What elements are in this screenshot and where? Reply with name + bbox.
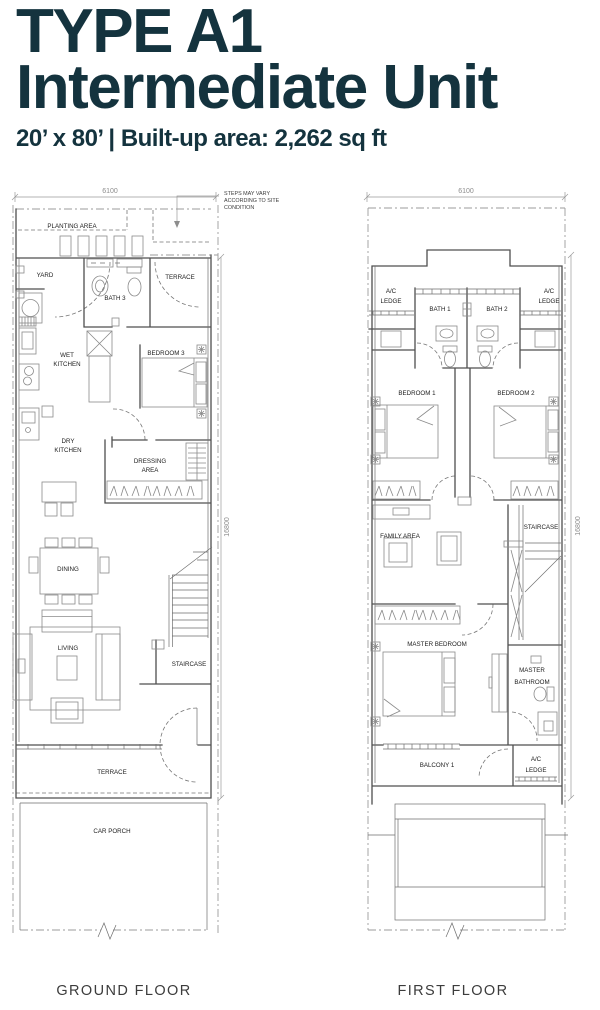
room-label-wet-kitchen2: KITCHEN xyxy=(53,361,80,368)
room-label-ac-ledge-left: A/C xyxy=(386,288,397,295)
fan-icon xyxy=(549,455,558,464)
bed-icon xyxy=(373,405,438,458)
sofa-icon xyxy=(384,538,412,567)
leader-arrow xyxy=(174,221,180,228)
bed-icon xyxy=(142,358,207,407)
gf-note-line1: STEPS MAY VARY xyxy=(224,191,270,197)
gf-staircase xyxy=(152,547,212,649)
room-label-dressing: DRESSING xyxy=(134,458,167,465)
first-floor-plan: 6100 16800 A/C LEDGE A/C LEDGE BATH 1 BA… xyxy=(364,188,582,999)
room-label-terrace-rear: TERRACE xyxy=(165,274,195,281)
gf-bath3-fixtures xyxy=(16,259,142,326)
ff-dim-width: 6100 xyxy=(458,188,474,195)
counter xyxy=(89,356,110,402)
room-label-dry-kitchen2: KITCHEN xyxy=(54,447,81,454)
ff-dimension-lines xyxy=(364,192,574,801)
room-label-ac-ledge-right2: LEDGE xyxy=(539,298,560,305)
tv-console-icon xyxy=(373,505,430,519)
sink-icon xyxy=(477,326,498,341)
ff-caption: FIRST FLOOR xyxy=(397,983,508,999)
room-label-master-bathroom: MASTER xyxy=(519,667,545,674)
gf-caption: GROUND FLOOR xyxy=(56,983,191,999)
ff-staircase xyxy=(458,497,561,640)
room-label-bath1: BATH 1 xyxy=(429,306,451,313)
room-label-terrace-front: TERRACE xyxy=(97,769,127,776)
floor-plans-canvas: 6100 16800 STEPS MAY VARY ACCORDING TO S… xyxy=(0,0,600,1010)
room-label-living: LIVING xyxy=(58,645,78,652)
toilet-icon xyxy=(127,267,141,273)
ff-master-bed xyxy=(383,652,455,717)
fan-icon xyxy=(197,345,206,354)
room-label-master-bedroom: MASTER BEDROOM xyxy=(407,641,466,648)
room-label-ff-staircase: STAIRCASE xyxy=(524,524,559,531)
room-label-bath2: BATH 2 xyxy=(486,306,508,313)
room-label-dry-kitchen: DRY xyxy=(62,438,75,445)
ac-unit-icon xyxy=(535,331,555,347)
toilet-icon xyxy=(534,687,546,701)
room-label-yard: YARD xyxy=(37,272,54,279)
gf-island xyxy=(42,482,76,516)
room-label-wet-kitchen: WET xyxy=(60,352,74,359)
gf-dim-height: 16800 xyxy=(224,517,231,537)
gf-garden-steps xyxy=(60,236,143,256)
gf-note-line2: ACCORDING TO SITE xyxy=(224,198,280,204)
room-label-dining: DINING xyxy=(57,566,79,573)
sink-icon xyxy=(531,656,541,663)
gf-living-set xyxy=(13,610,120,723)
gf-note-line3: CONDITION xyxy=(224,205,254,211)
room-label-ac-ledge-right: A/C xyxy=(544,288,555,295)
ff-bedroom2-bed xyxy=(494,406,559,458)
ff-wardrobes xyxy=(373,481,558,624)
washer-icon xyxy=(19,293,42,323)
room-label-ac-ledge-left2: LEDGE xyxy=(381,298,402,305)
ff-roof-over-porch xyxy=(368,804,568,920)
rug xyxy=(30,627,120,710)
gf-door-arcs xyxy=(55,262,200,782)
room-label-bedroom3: BEDROOM 3 xyxy=(147,350,185,357)
room-label-planting-area: PLANTING AREA xyxy=(47,223,97,230)
fan-icon xyxy=(197,409,206,418)
room-label-ac-ledge-bottom: A/C xyxy=(531,756,542,763)
room-label-dressing2: AREA xyxy=(142,467,160,474)
room-label-gf-staircase: STAIRCASE xyxy=(172,661,207,668)
room-label-bath3: BATH 3 xyxy=(104,295,126,302)
ground-floor-plan: 6100 16800 STEPS MAY VARY ACCORDING TO S… xyxy=(12,188,280,999)
sofa-icon xyxy=(42,610,92,632)
room-label-balcony1: BALCONY 1 xyxy=(420,762,455,769)
room-label-bedroom2: BEDROOM 2 xyxy=(497,390,535,397)
room-label-master-bathroom2: BATHROOM xyxy=(514,679,549,686)
fan-icon xyxy=(549,397,558,406)
ff-break-symbol xyxy=(446,923,464,939)
ac-unit-icon xyxy=(381,331,401,347)
coffee-table-icon xyxy=(57,656,77,680)
room-label-bedroom1: BEDROOM 1 xyxy=(398,390,436,397)
room-label-car-porch: CAR PORCH xyxy=(93,828,130,835)
gf-dim-width: 6100 xyxy=(102,188,118,195)
shower-icon xyxy=(538,712,557,735)
ff-master-tv-console xyxy=(489,654,507,712)
sofa-icon xyxy=(96,634,120,700)
ff-bedroom1-bed xyxy=(373,405,438,458)
sink-icon xyxy=(436,326,457,341)
gf-break-symbol xyxy=(98,923,116,939)
gf-lot-boundary xyxy=(13,205,218,935)
ff-dim-height: 16800 xyxy=(575,516,582,536)
gf-bedroom3-bed xyxy=(142,358,207,407)
room-label-ac-ledge-bottom2: LEDGE xyxy=(526,767,547,774)
room-label-family-area: FAMILY AREA xyxy=(380,533,421,540)
